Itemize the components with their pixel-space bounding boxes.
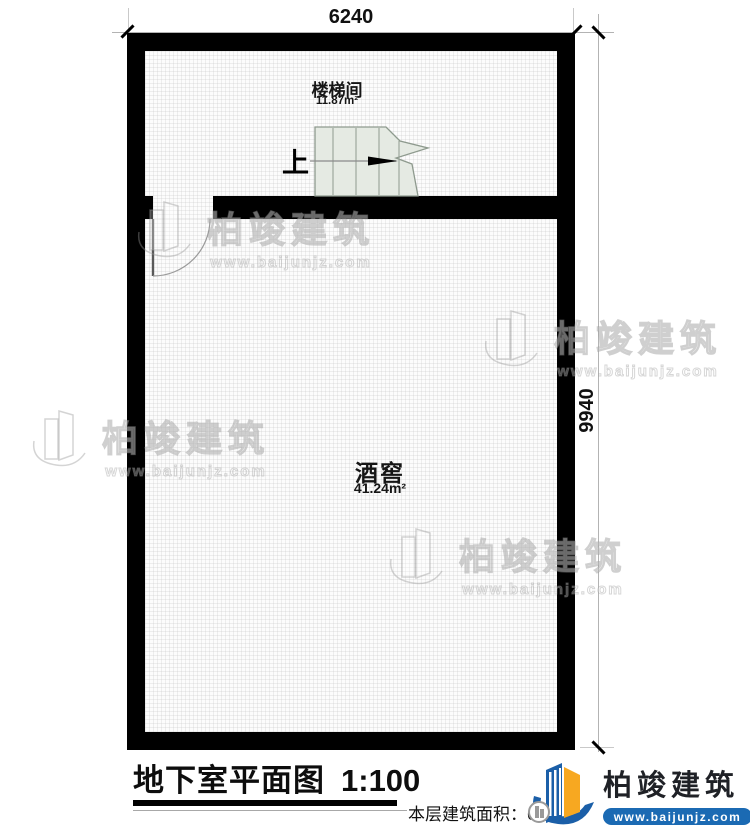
top-dimension-line (112, 32, 614, 33)
stairwell-room-floor (145, 51, 557, 196)
building-swoosh-icon (28, 403, 98, 473)
watermark: 柏竣建筑 www.baijunjz.com (480, 303, 722, 380)
watermark-text: 柏竣建筑 www.baijunjz.com (554, 303, 722, 380)
logo-company-name: 柏竣建筑 (603, 762, 750, 804)
wine-cellar-room-area: 41.24m² (300, 480, 460, 496)
top-dimension-value: 6240 (127, 6, 575, 29)
right-dimension-text: 9940 (576, 388, 599, 433)
logo-url-bar: www.baijunjz.com (603, 808, 750, 825)
watermark-text: 柏竣建筑 www.baijunjz.com (459, 521, 627, 598)
logo-building-icon (526, 754, 598, 830)
watermark-url: www.baijunjz.com (102, 463, 270, 480)
watermark-url: www.baijunjz.com (554, 363, 722, 380)
watermark: 柏竣建筑 www.baijunjz.com (133, 194, 375, 271)
title-underline-thin (133, 810, 407, 811)
plan-scale: 1:100 (341, 763, 420, 799)
logo-url: www.baijunjz.com (614, 810, 742, 824)
building-swoosh-icon (133, 194, 203, 264)
watermark-text: 柏竣建筑 www.baijunjz.com (207, 194, 375, 271)
logo-text-column: 柏竣建筑 www.baijunjz.com (603, 754, 750, 825)
stairwell-room-area: 11.87m² (257, 95, 417, 107)
right-dimension-value: 9940 (572, 378, 602, 442)
watermark: 柏竣建筑 www.baijunjz.com (385, 521, 627, 598)
title-block: 地下室平面图 1:100 (133, 755, 420, 800)
watermark-text: 柏竣建筑 www.baijunjz.com (102, 403, 270, 480)
stairs-up-label: 上 (282, 141, 309, 180)
building-swoosh-icon (480, 303, 550, 373)
plan-title: 地下室平面图 (133, 755, 325, 800)
watermark-name: 柏竣建筑 (459, 528, 627, 580)
company-logo: 柏竣建筑 www.baijunjz.com (526, 754, 750, 830)
watermark-url: www.baijunjz.com (207, 254, 375, 271)
watermark-name: 柏竣建筑 (554, 310, 722, 362)
watermark-url: www.baijunjz.com (459, 581, 627, 598)
floor-plan-page: 6240 9940 楼梯间 11.87m² 酒窖 41.24m² 上 柏竣建筑 … (0, 0, 750, 832)
watermark-name: 柏竣建筑 (102, 410, 270, 462)
watermark-name: 柏竣建筑 (207, 201, 375, 253)
watermark: 柏竣建筑 www.baijunjz.com (28, 403, 270, 480)
building-swoosh-icon (385, 521, 455, 591)
title-underline-thick (133, 800, 397, 806)
